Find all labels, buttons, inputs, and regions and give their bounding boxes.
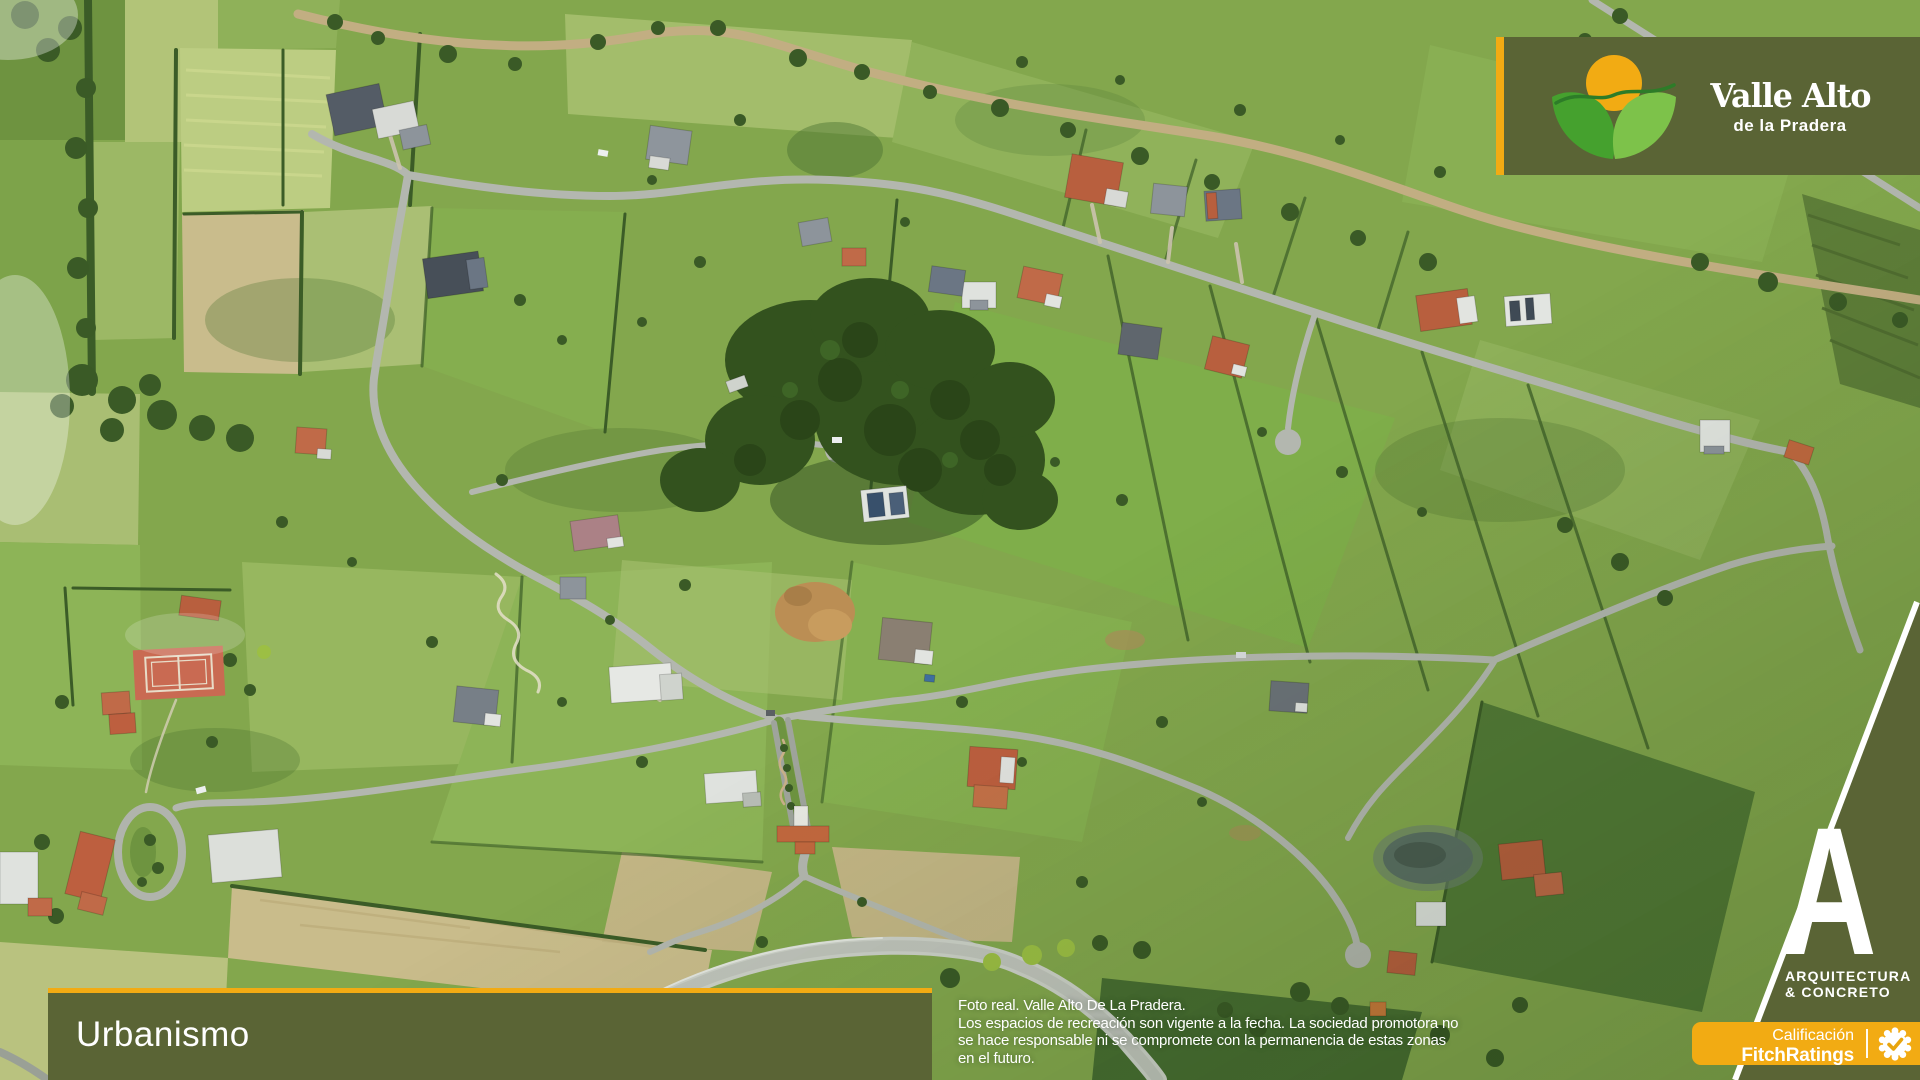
disclaimer-line: Foto real. Valle Alto De La Pradera. [958,997,1458,1015]
disclaimer-line: Los espacios de recreación son vigente a… [958,1015,1458,1033]
arquitectura-concreto-monogram: A [1782,800,1877,982]
partner-line2: & CONCRETO [1785,985,1911,1001]
brand-name: Valle Alto [1710,76,1870,115]
disclaimer-line: se hace responsable ni se compromete con… [958,1032,1458,1050]
rating-agency: FitchRatings [1741,1046,1854,1065]
disclaimer-line: en el futuro. [958,1050,1458,1068]
seal-check-icon [1876,1025,1914,1063]
arquitectura-concreto-wordmark: ARQUITECTURA & CONCRETO [1785,969,1911,1000]
gold-accent-stripe [1496,37,1504,175]
slide: A ARQUITECTURA & CONCRETO Valle Alto de … [0,0,1920,1080]
section-title: Urbanismo [48,1015,250,1055]
partner-line1: ARQUITECTURA [1785,969,1911,985]
photo-disclaimer: Foto real. Valle Alto De La Pradera. Los… [958,997,1458,1067]
rating-label: Calificación [1741,1028,1854,1044]
brand-logo-box: Valle Alto de la Pradera [1504,37,1920,175]
sun-over-hills-icon [1544,45,1688,167]
brand-subtitle: de la Pradera [1733,116,1846,136]
fitch-rating-bar: Calificación FitchRatings [1692,1022,1920,1065]
separator [1866,1029,1869,1058]
section-title-bar: Urbanismo [48,988,932,1080]
